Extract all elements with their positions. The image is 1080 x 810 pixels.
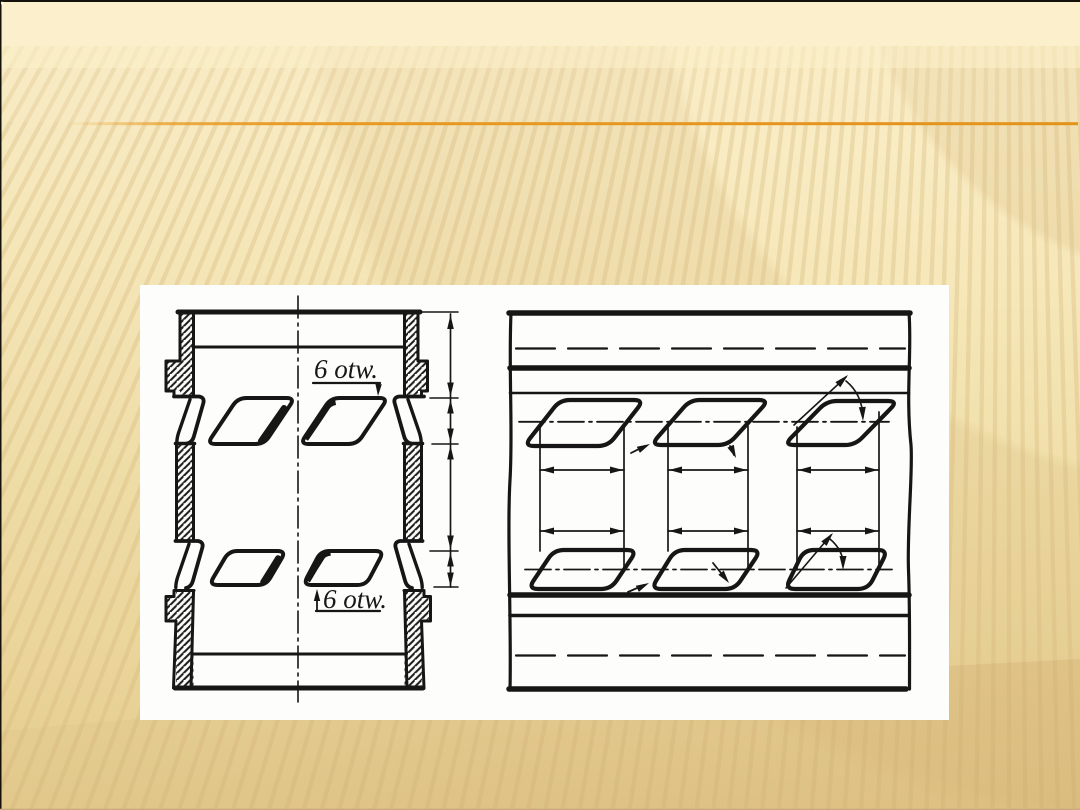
svg-text:6 otw.: 6 otw. bbox=[323, 584, 387, 614]
svg-text:6 otw.: 6 otw. bbox=[314, 354, 378, 384]
